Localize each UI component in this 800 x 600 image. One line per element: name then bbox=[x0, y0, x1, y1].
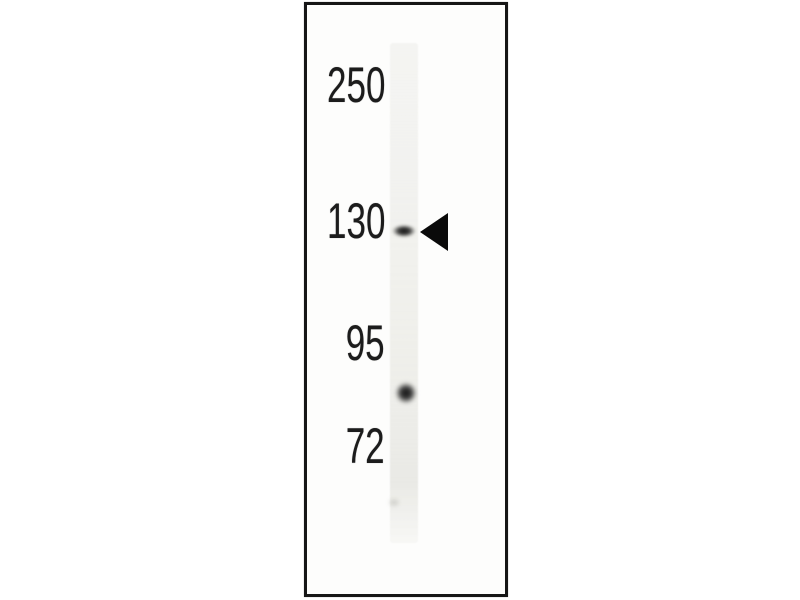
protein-band-130kda bbox=[391, 224, 417, 238]
marker-label-130: 130 bbox=[327, 196, 385, 246]
marker-label-95: 95 bbox=[346, 318, 385, 368]
western-blot-figure: 250 130 95 72 bbox=[0, 0, 800, 600]
protein-band-mid bbox=[394, 381, 418, 405]
marker-label-250: 250 bbox=[327, 60, 385, 110]
marker-label-72: 72 bbox=[346, 421, 385, 471]
band-pointer-arrow-icon bbox=[420, 213, 448, 251]
gel-lane bbox=[390, 43, 418, 543]
faint-band-artifact bbox=[387, 497, 401, 508]
